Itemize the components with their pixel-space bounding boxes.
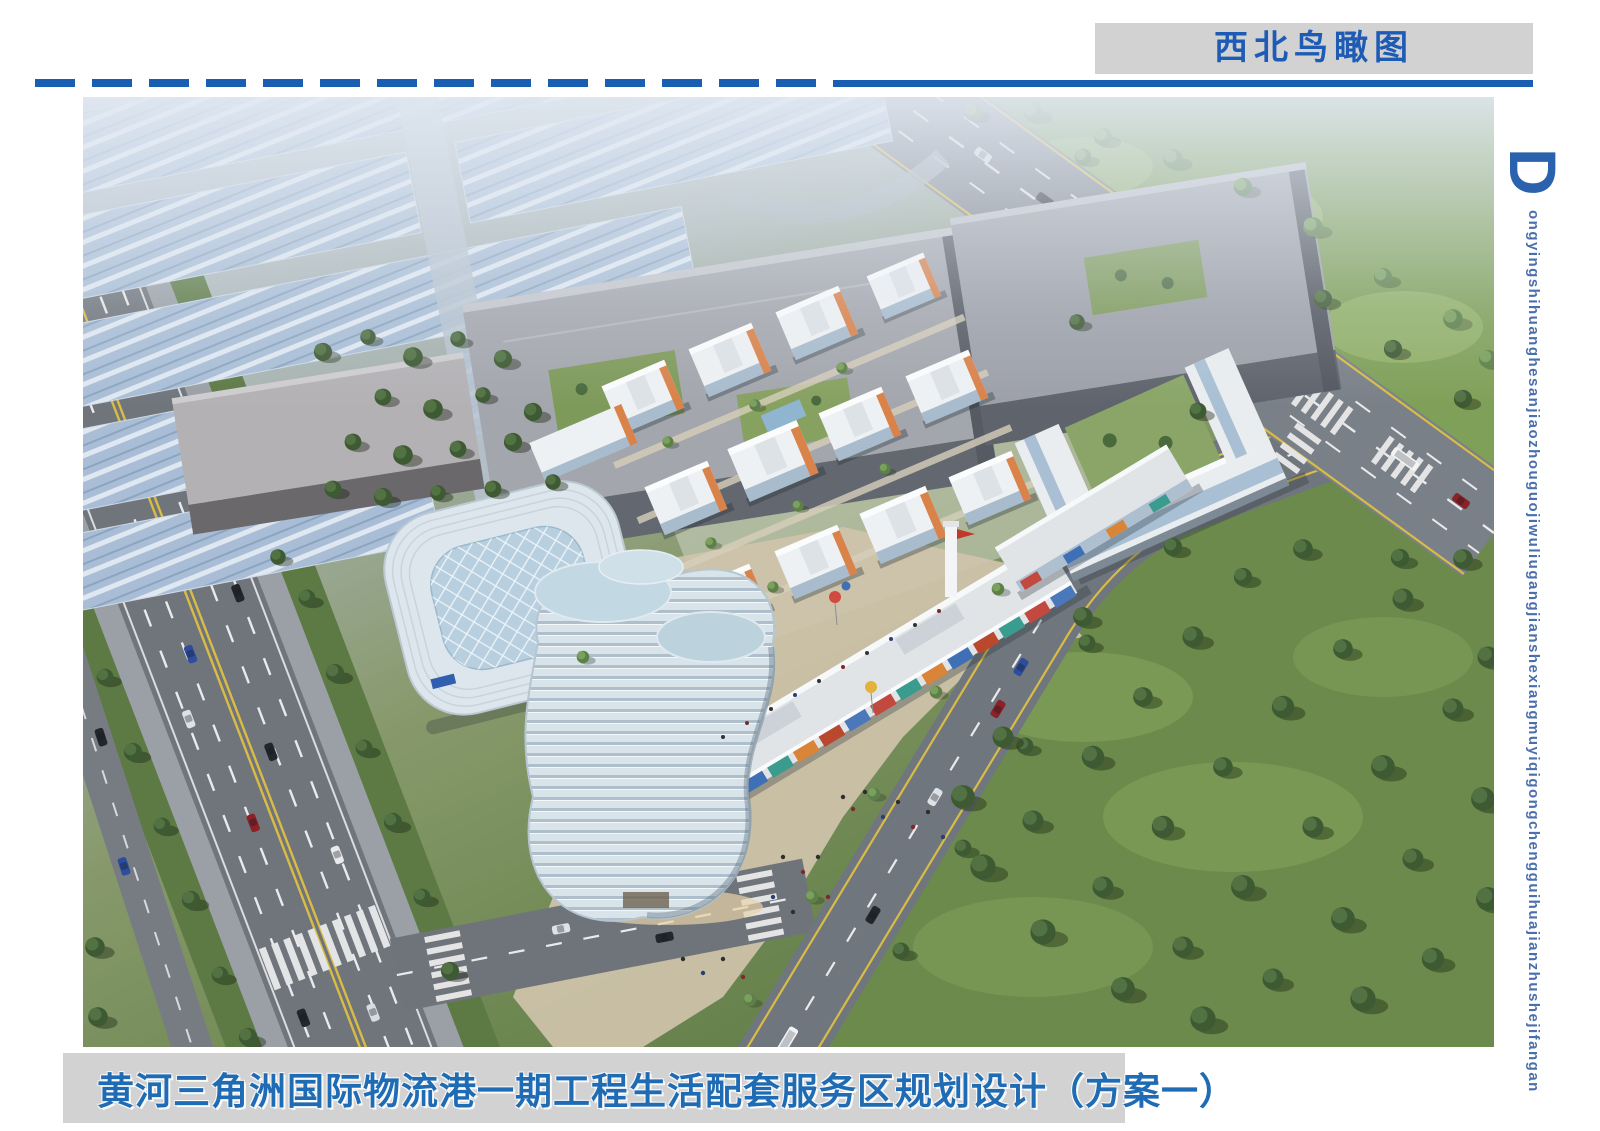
- aerial-rendering: [83, 97, 1494, 1047]
- view-title-tab: 西北鸟瞰图: [1095, 23, 1533, 74]
- footer-title-bar: 黄河三角洲国际物流港一期工程生活配套服务区规划设计（方案一）: [63, 1053, 1125, 1123]
- project-name-initial: D: [1496, 148, 1570, 196]
- project-name-pinyin: ongyingshihuanghesanjiaozhouguojiwuliuga…: [1525, 210, 1542, 1093]
- project-title: 黄河三角洲国际物流港一期工程生活配套服务区规划设计（方案一）: [63, 1061, 1237, 1115]
- haze-overlay: [83, 97, 1494, 527]
- dashed-divider: [35, 79, 822, 87]
- view-title: 西北鸟瞰图: [1214, 23, 1414, 74]
- curved-tower: [525, 550, 774, 925]
- project-name-vertical: Dongyingshihuanghesanjiaozhouguojiwuliug…: [1502, 148, 1564, 1058]
- solid-divider: [833, 80, 1533, 87]
